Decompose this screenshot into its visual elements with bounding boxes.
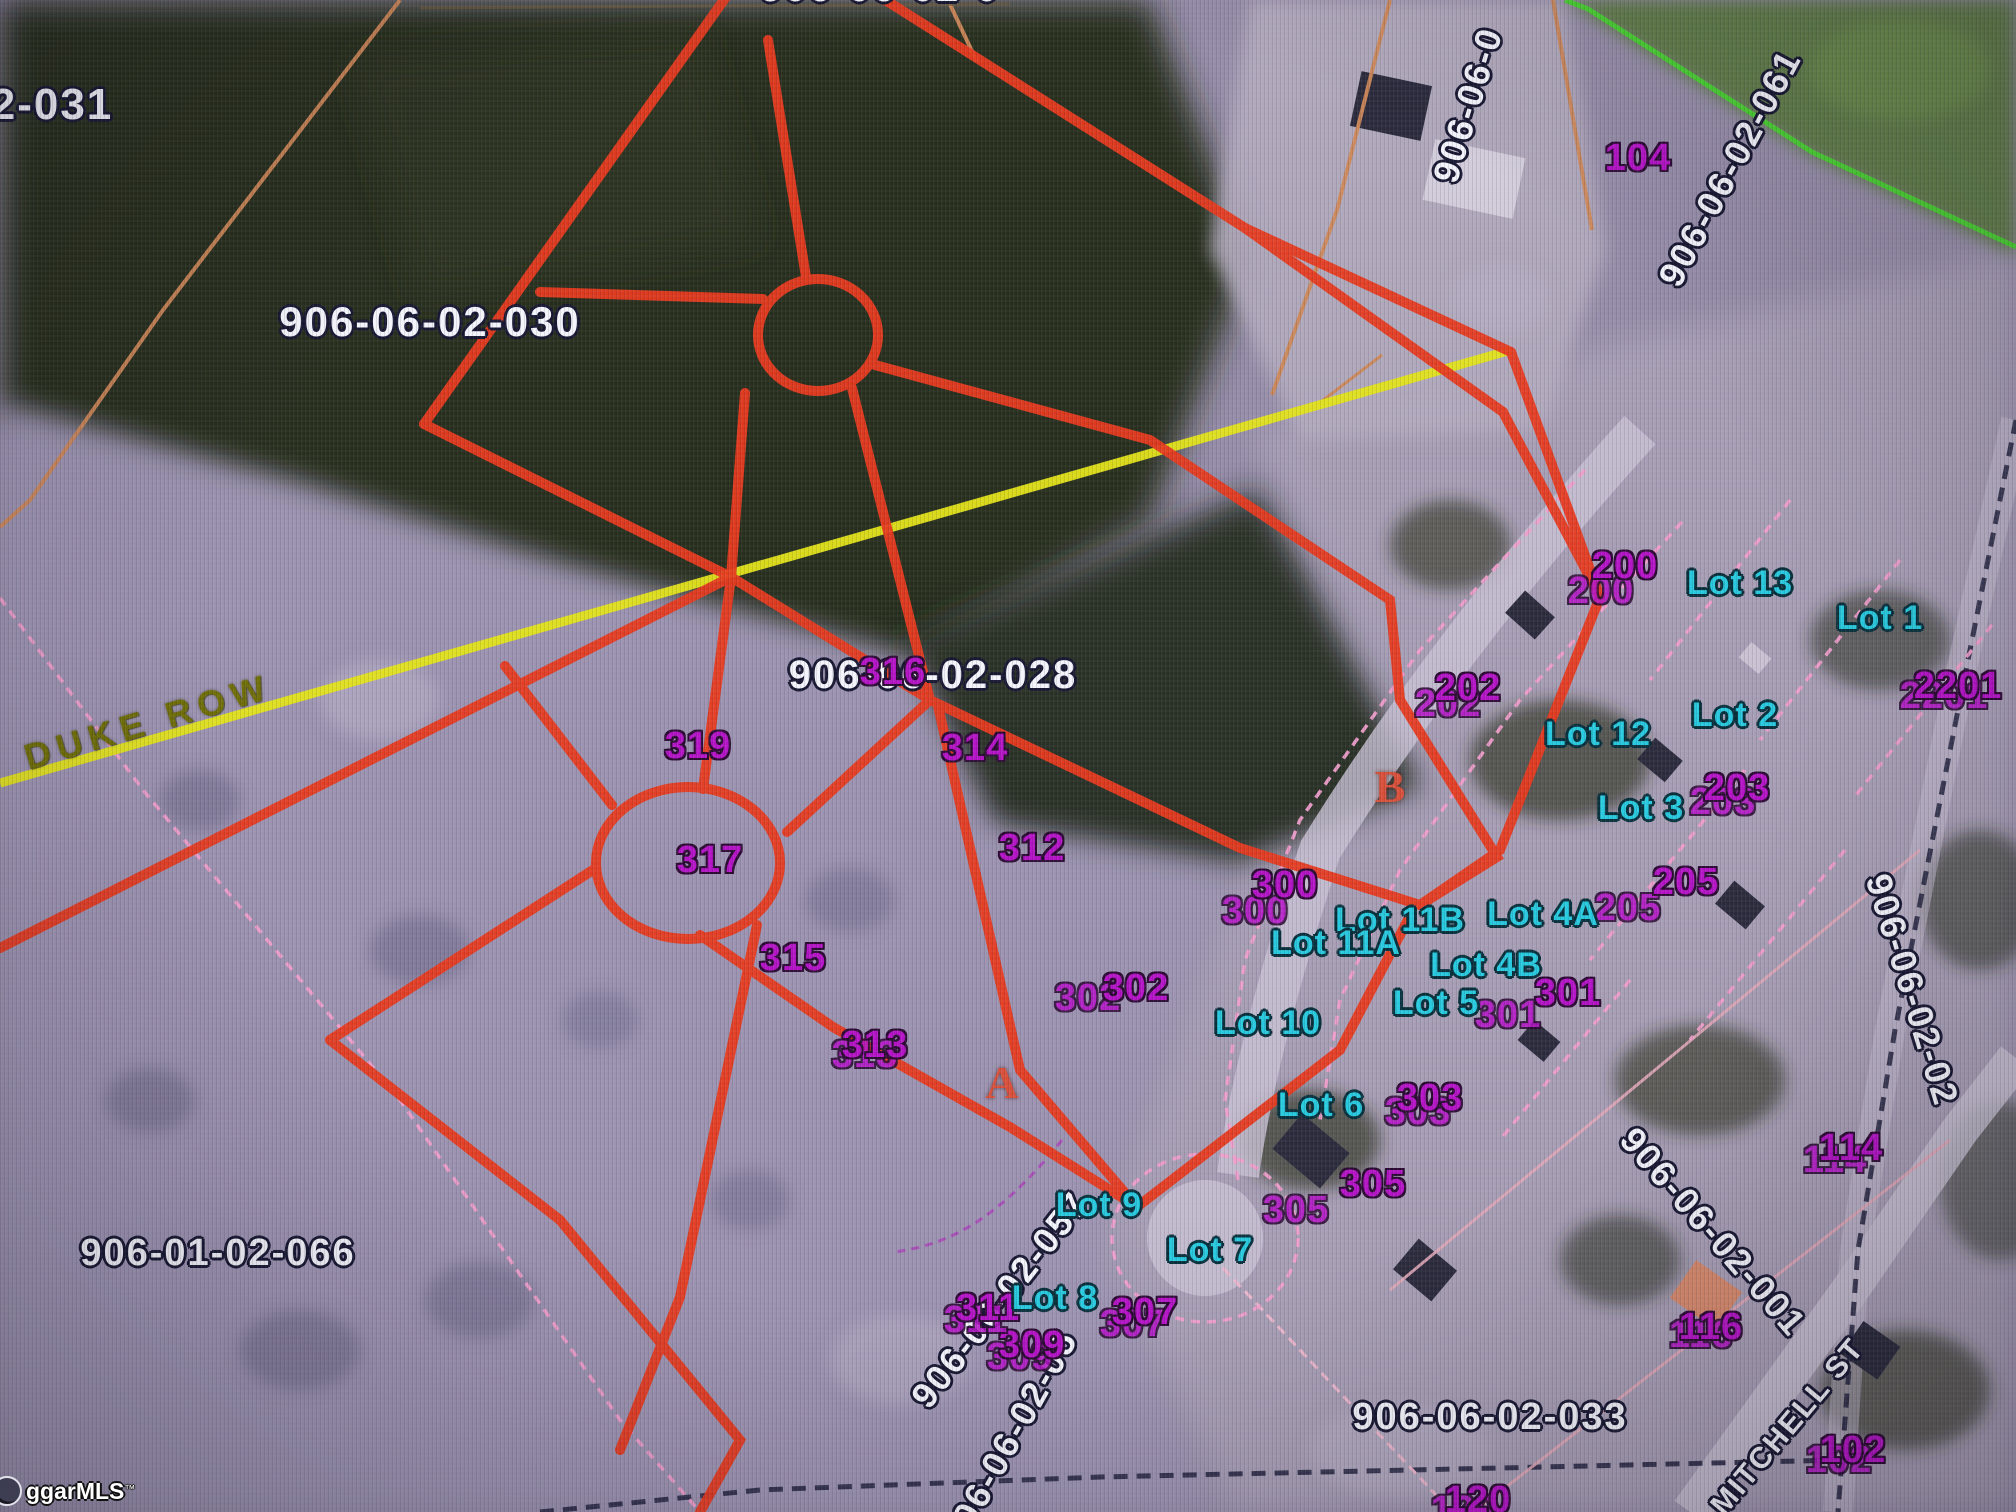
- house-number-label-ghost: 102: [1806, 1441, 1872, 1479]
- house-number-label-ghost: 302: [1055, 979, 1121, 1017]
- house-number-label: 301: [1535, 974, 1601, 1012]
- house-number-label-ghost: 114: [1803, 1141, 1867, 1179]
- house-number-label: 311: [956, 1289, 1020, 1327]
- lot-label: Lot 7: [1167, 1233, 1253, 1267]
- lot-label: Lot 4B: [1430, 948, 1542, 982]
- parcel-number-label: 906-06-02-033: [1352, 1398, 1627, 1436]
- house-number-label: 114: [1819, 1129, 1883, 1167]
- house-number-label: 2201: [1914, 667, 2003, 705]
- house-number-label: 116: [1679, 1308, 1743, 1346]
- house-number-label-ghost: 116: [1669, 1316, 1733, 1354]
- parcel-number-label: 906-06-02-030: [279, 301, 581, 343]
- parcel-number-label: 2-031: [0, 83, 113, 127]
- parcel-number-label: 906-01-02-066: [80, 1234, 355, 1272]
- house-number-label: 120: [1445, 1481, 1511, 1512]
- street-name-label: DUKE ROW: [20, 668, 276, 775]
- house-number-label: 205: [1653, 863, 1719, 901]
- house-number-label: 303: [1397, 1079, 1463, 1117]
- lot-label: Lot 12: [1545, 717, 1651, 751]
- lot-label: Lot 4A: [1487, 897, 1599, 931]
- lot-label: Lot 3: [1598, 791, 1684, 825]
- house-number-label-ghost: 205: [1595, 889, 1661, 927]
- house-number-label-ghost: 2201: [1900, 677, 1989, 715]
- house-number-label-ghost: 311: [944, 1301, 1008, 1339]
- gis-map-view[interactable]: 2-031906-06-02-0906-06-02-030906-06-02-0…: [0, 0, 2016, 1512]
- house-number-label: 104: [1605, 139, 1671, 177]
- lot-label: Lot 1: [1837, 601, 1923, 635]
- mls-watermark: ggarMLS™: [4, 1476, 135, 1506]
- street-name-label: MITCHELL ST: [1706, 1333, 1870, 1512]
- house-number-label: 203: [1704, 769, 1770, 807]
- house-number-label-ghost: 120: [1431, 1491, 1497, 1512]
- house-number-label-ghost: 309: [987, 1338, 1053, 1376]
- map-labels-layer: 2-031906-06-02-0906-06-02-030906-06-02-0…: [0, 0, 2016, 1512]
- section-letter-label: B: [1375, 764, 1406, 810]
- house-number-label-ghost: 301: [1475, 996, 1541, 1034]
- house-number-label: 200: [1592, 547, 1658, 585]
- lot-label: Lot 13: [1687, 566, 1793, 600]
- house-number-label-ghost: 202: [1415, 685, 1481, 723]
- house-number-label-ghost: 313: [832, 1036, 898, 1074]
- parcel-number-label: 906-06-02-0: [760, 0, 1000, 8]
- lot-label: Lot 11B: [1335, 903, 1465, 937]
- house-number-label: 102: [1820, 1431, 1886, 1469]
- house-number-label: 202: [1435, 669, 1501, 707]
- house-number-label: 319: [665, 727, 731, 765]
- parcel-number-label: 906-06-02-001: [1613, 1121, 1812, 1342]
- parcel-number-label: 906-06-02-028: [789, 655, 1077, 695]
- mls-logo-icon: [0, 1476, 22, 1506]
- house-number-label: 314: [942, 729, 1008, 767]
- lot-label: Lot 8: [1012, 1281, 1098, 1315]
- house-number-label: 307: [1112, 1293, 1178, 1331]
- lot-label: Lot 2: [1692, 698, 1778, 732]
- house-number-label: 313: [842, 1026, 908, 1064]
- lot-label: Lot 6: [1278, 1088, 1364, 1122]
- lot-label: Lot 9: [1056, 1188, 1142, 1222]
- house-number-label-ghost: 300: [1222, 892, 1288, 930]
- parcel-number-label: 906-06-02-05: [936, 1324, 1084, 1512]
- lot-label: Lot 11A: [1271, 926, 1401, 960]
- house-number-label: 300: [1252, 866, 1318, 904]
- lot-label: Lot 10: [1215, 1006, 1321, 1040]
- lot-label: Lot 5: [1393, 986, 1479, 1020]
- house-number-label: 309: [999, 1326, 1065, 1364]
- house-number-label-ghost: 200: [1568, 572, 1634, 610]
- parcel-number-label: 906-06-02-057: [905, 1186, 1095, 1415]
- parcel-number-label: 906-06-02-02: [1860, 870, 1965, 1110]
- house-number-label: 312: [999, 829, 1065, 867]
- house-number-label: 315: [760, 939, 826, 977]
- mls-watermark-text: ggarMLS™: [26, 1478, 135, 1505]
- parcel-number-label: 906-06-0: [1427, 23, 1508, 187]
- house-number-label: 305: [1340, 1165, 1406, 1203]
- house-number-label-ghost: 307: [1100, 1305, 1166, 1343]
- house-number-label-ghost: 303: [1385, 1093, 1451, 1131]
- house-number-label: 317: [677, 841, 743, 879]
- house-number-label: 302: [1103, 969, 1169, 1007]
- house-number-label-ghost: 203: [1690, 783, 1756, 821]
- section-letter-label: A: [985, 1060, 1018, 1106]
- parcel-number-label: 906-06-02-061: [1653, 44, 1808, 292]
- house-number-label-ghost: 305: [1263, 1191, 1329, 1229]
- house-number-label: 316: [860, 653, 926, 691]
